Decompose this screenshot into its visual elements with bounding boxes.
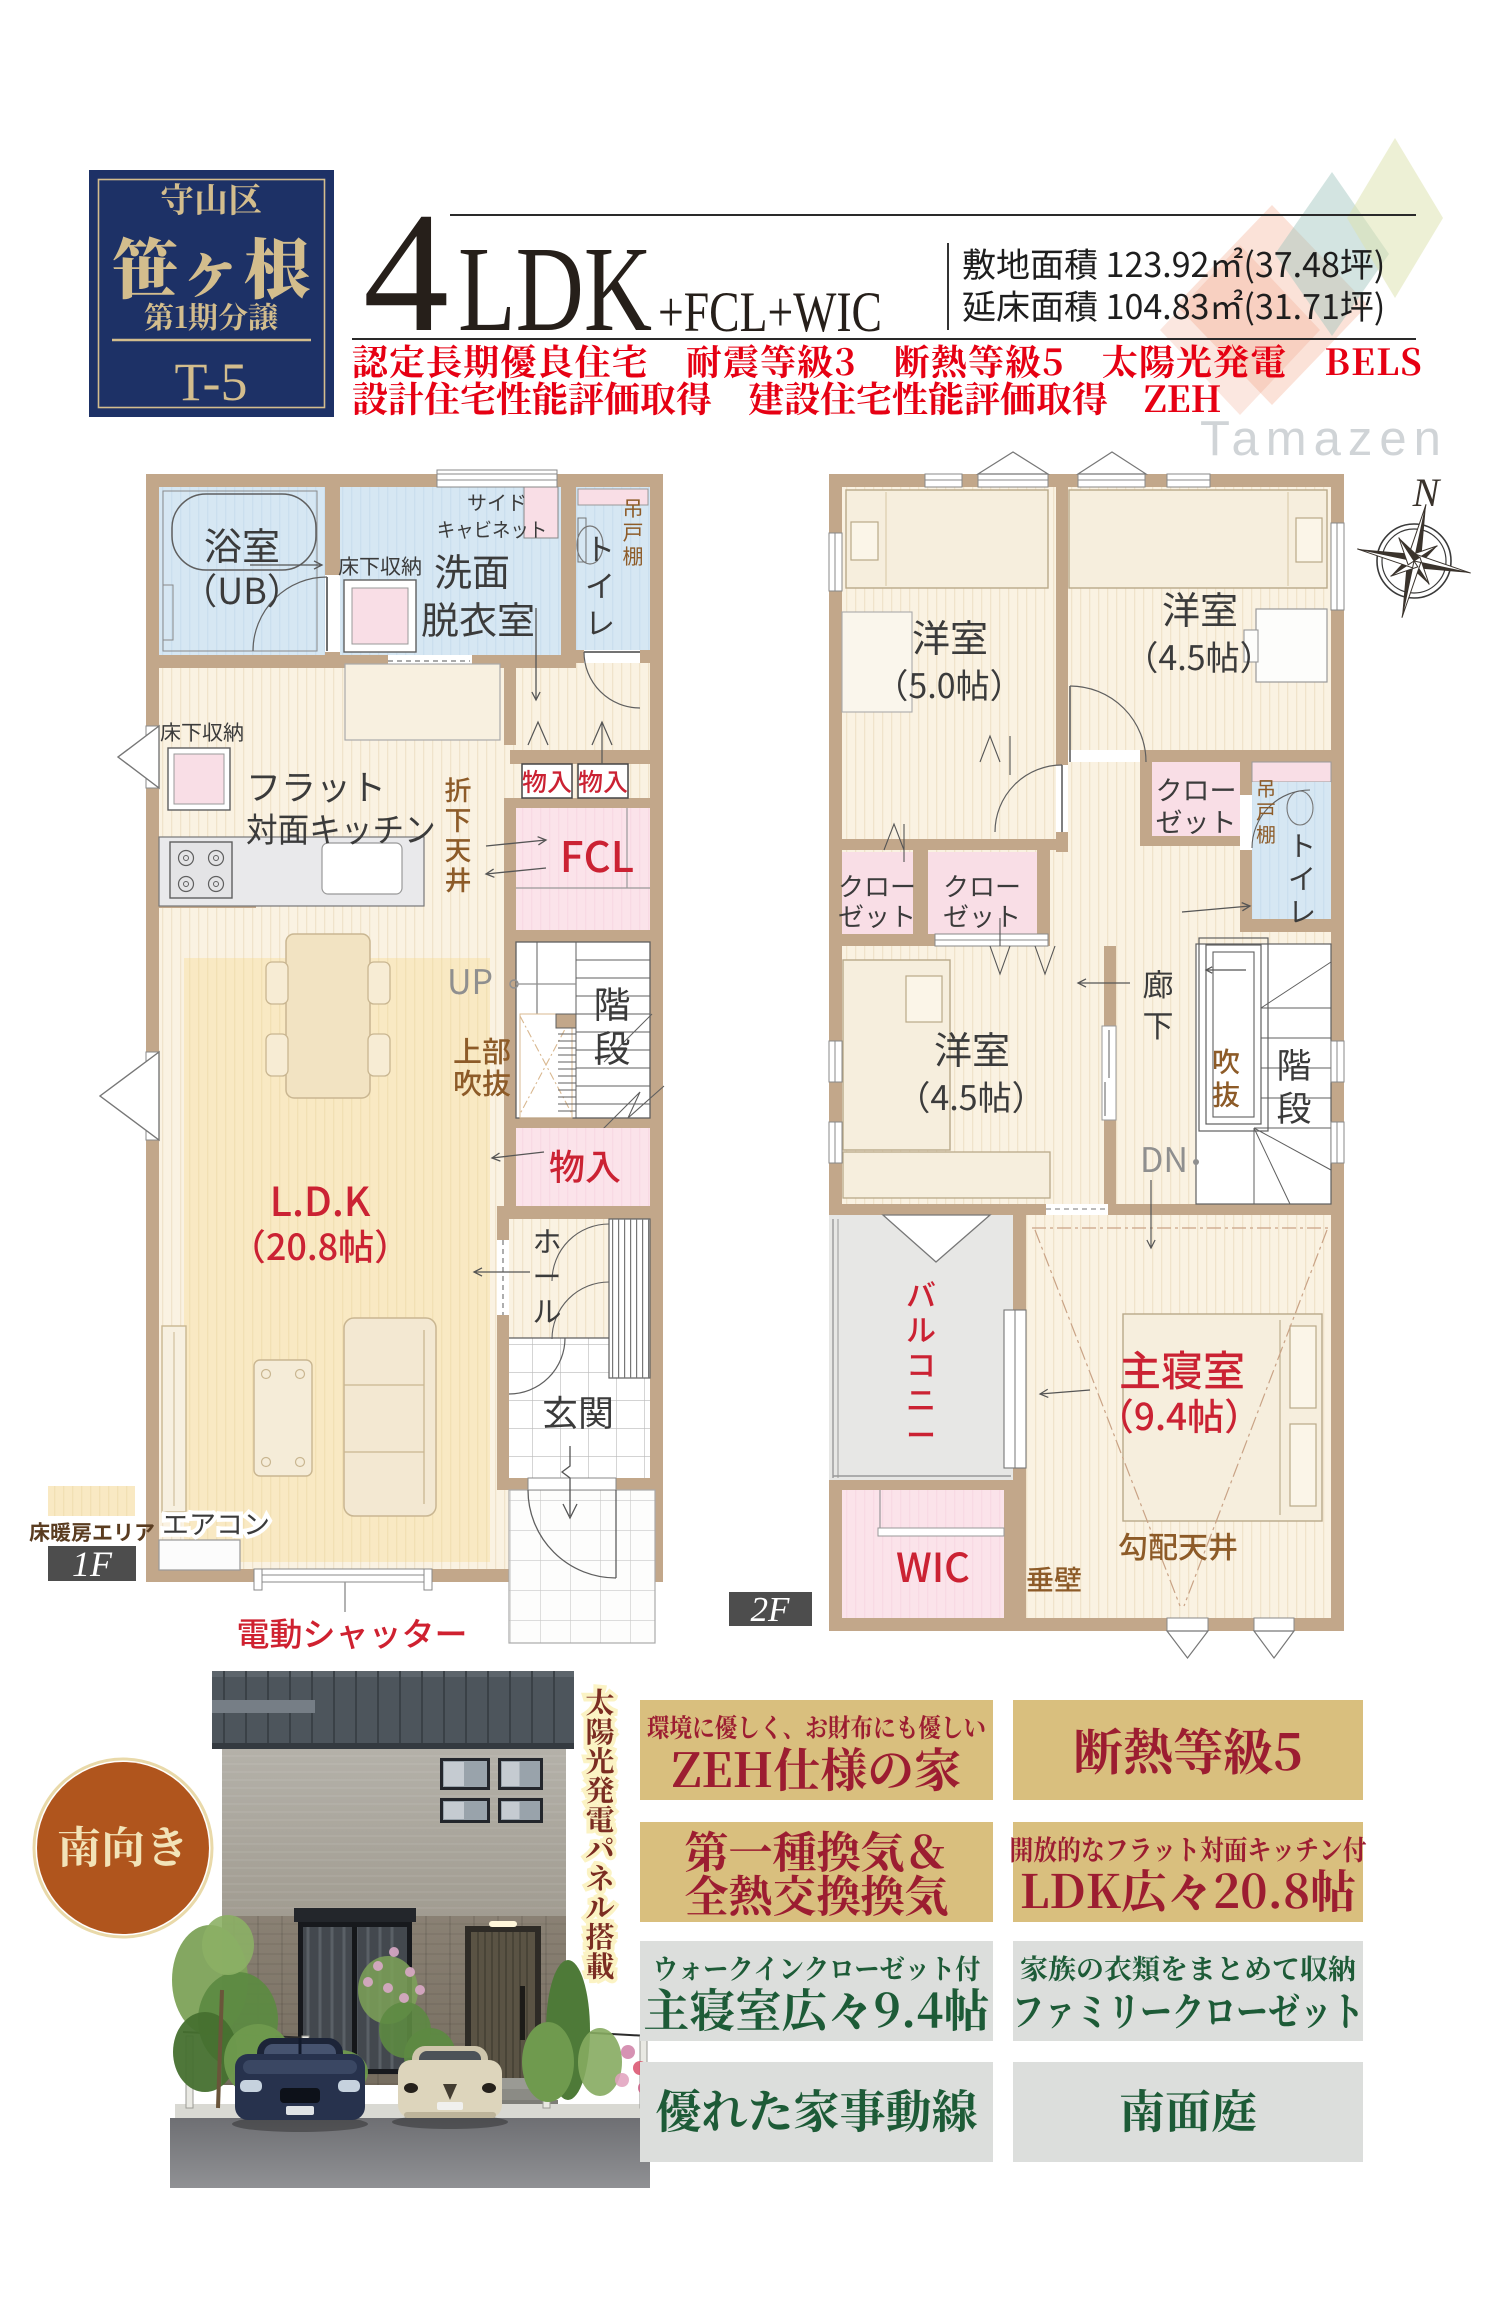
- svg-text:1F: 1F: [72, 1544, 113, 1584]
- svg-text:LDK: LDK: [458, 222, 652, 357]
- svg-text:2F: 2F: [751, 1590, 791, 1629]
- svg-text:T-5: T-5: [174, 352, 247, 412]
- svg-text:Tamazen: Tamazen: [1200, 412, 1448, 466]
- svg-text:N: N: [1412, 470, 1442, 515]
- svg-text:+FCL+WIC: +FCL+WIC: [658, 281, 882, 344]
